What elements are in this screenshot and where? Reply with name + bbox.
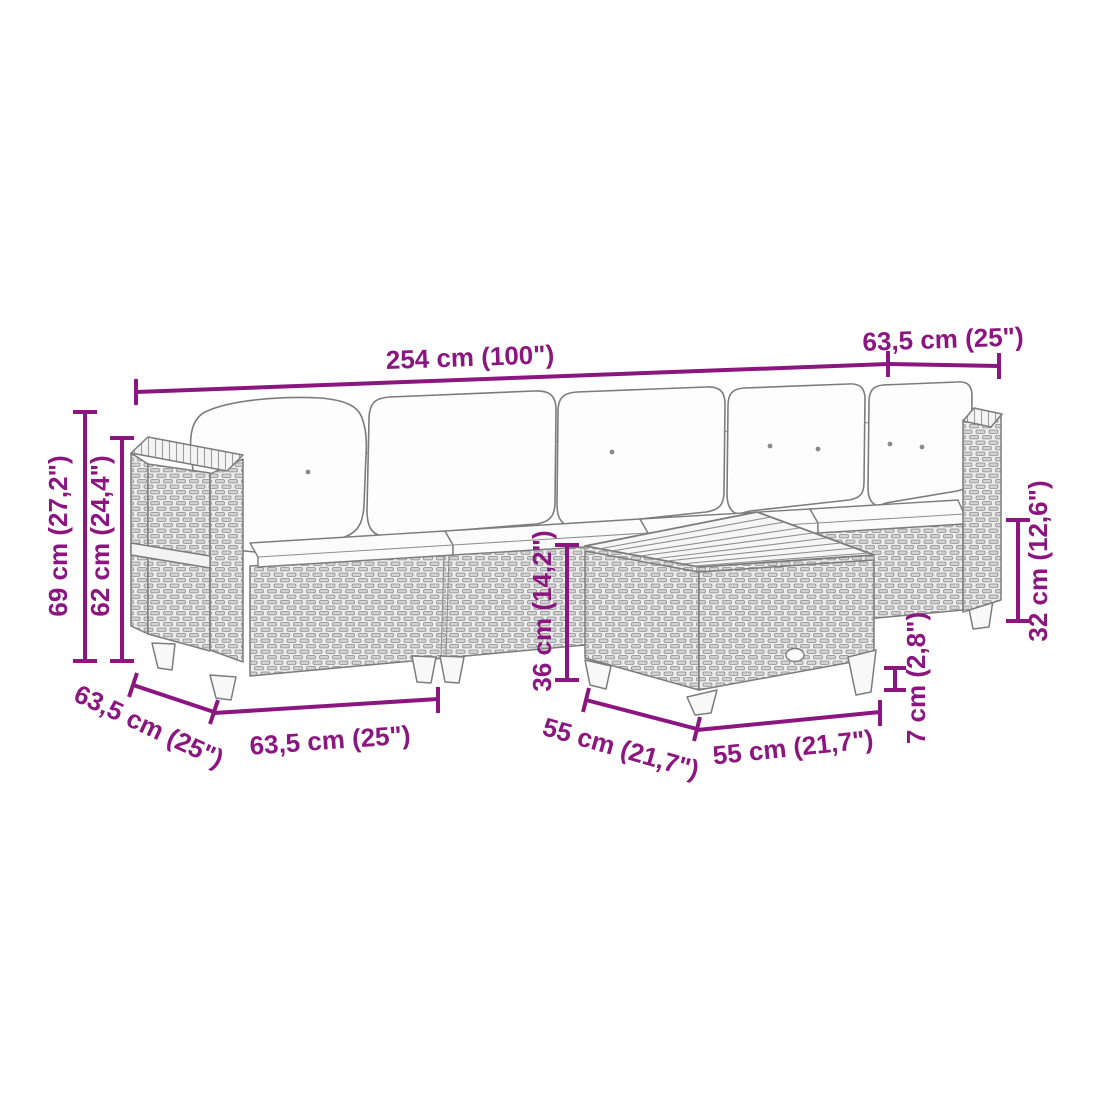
sofa-leg xyxy=(440,656,464,683)
dim-label-backrest-height: 62 cm (24,4") xyxy=(85,455,115,616)
right-side-panel xyxy=(963,414,1001,612)
dim-table-depth: 55 cm (21,7") xyxy=(539,688,702,785)
table-leg xyxy=(848,650,876,695)
ottoman-table-illustration xyxy=(585,512,876,715)
left-armrest xyxy=(131,437,243,662)
dim-label-table-width: 55 cm (21,7") xyxy=(711,724,874,771)
cushion-button xyxy=(610,450,615,455)
product-dimension-diagram: 254 cm (100") 63,5 cm (25") 69 cm (27,2"… xyxy=(0,0,1100,1100)
dim-label-sofa-total-length: 254 cm (100") xyxy=(385,339,554,375)
dim-label-corner-depth-top-right: 63,5 cm (25") xyxy=(862,321,1024,357)
back-cushion-3 xyxy=(557,387,725,526)
dim-label-table-height: 36 cm (14,2") xyxy=(527,530,557,691)
back-cushion-4 xyxy=(727,384,865,514)
sofa-leg xyxy=(412,656,436,683)
dim-corner-depth-bottom-left: 63,5 cm (25") xyxy=(70,673,229,774)
dim-label-section-width: 63,5 cm (25") xyxy=(249,720,412,761)
umbrella-hole xyxy=(786,649,804,662)
cushion-button xyxy=(888,442,893,447)
sofa-leg xyxy=(152,643,175,670)
back-cushion-5 xyxy=(868,382,972,506)
dim-section-width: 63,5 cm (25") xyxy=(214,687,438,761)
sofa-leg xyxy=(210,675,236,700)
back-cushion-2 xyxy=(367,391,556,536)
cushion-button xyxy=(920,445,925,450)
table-front-face xyxy=(699,560,874,690)
diagram-canvas: 254 cm (100") 63,5 cm (25") 69 cm (27,2"… xyxy=(0,0,1100,1100)
dim-table-leg-height: 7 cm (2,8") xyxy=(884,612,931,744)
cushion-button xyxy=(816,447,821,452)
dim-table-width: 55 cm (21,7") xyxy=(697,700,880,770)
cushion-button xyxy=(306,470,311,475)
right-end-panel xyxy=(963,408,1002,612)
dim-label-rear-section-height: 32 cm (12,6") xyxy=(1023,480,1053,641)
table-leg xyxy=(585,660,611,689)
cushion-button xyxy=(768,444,773,449)
dim-label-total-height: 69 cm (27,2") xyxy=(43,455,73,616)
dim-backrest-height: 62 cm (24,4") xyxy=(85,438,134,661)
table-leg xyxy=(687,690,717,715)
dim-label-table-leg-height: 7 cm (2,8") xyxy=(901,612,931,744)
dim-label-corner-depth-bottom-left: 63,5 cm (25") xyxy=(70,678,229,773)
dim-rear-section-height: 32 cm (12,6") xyxy=(1006,480,1053,641)
armrest-inner-panel xyxy=(210,459,243,662)
